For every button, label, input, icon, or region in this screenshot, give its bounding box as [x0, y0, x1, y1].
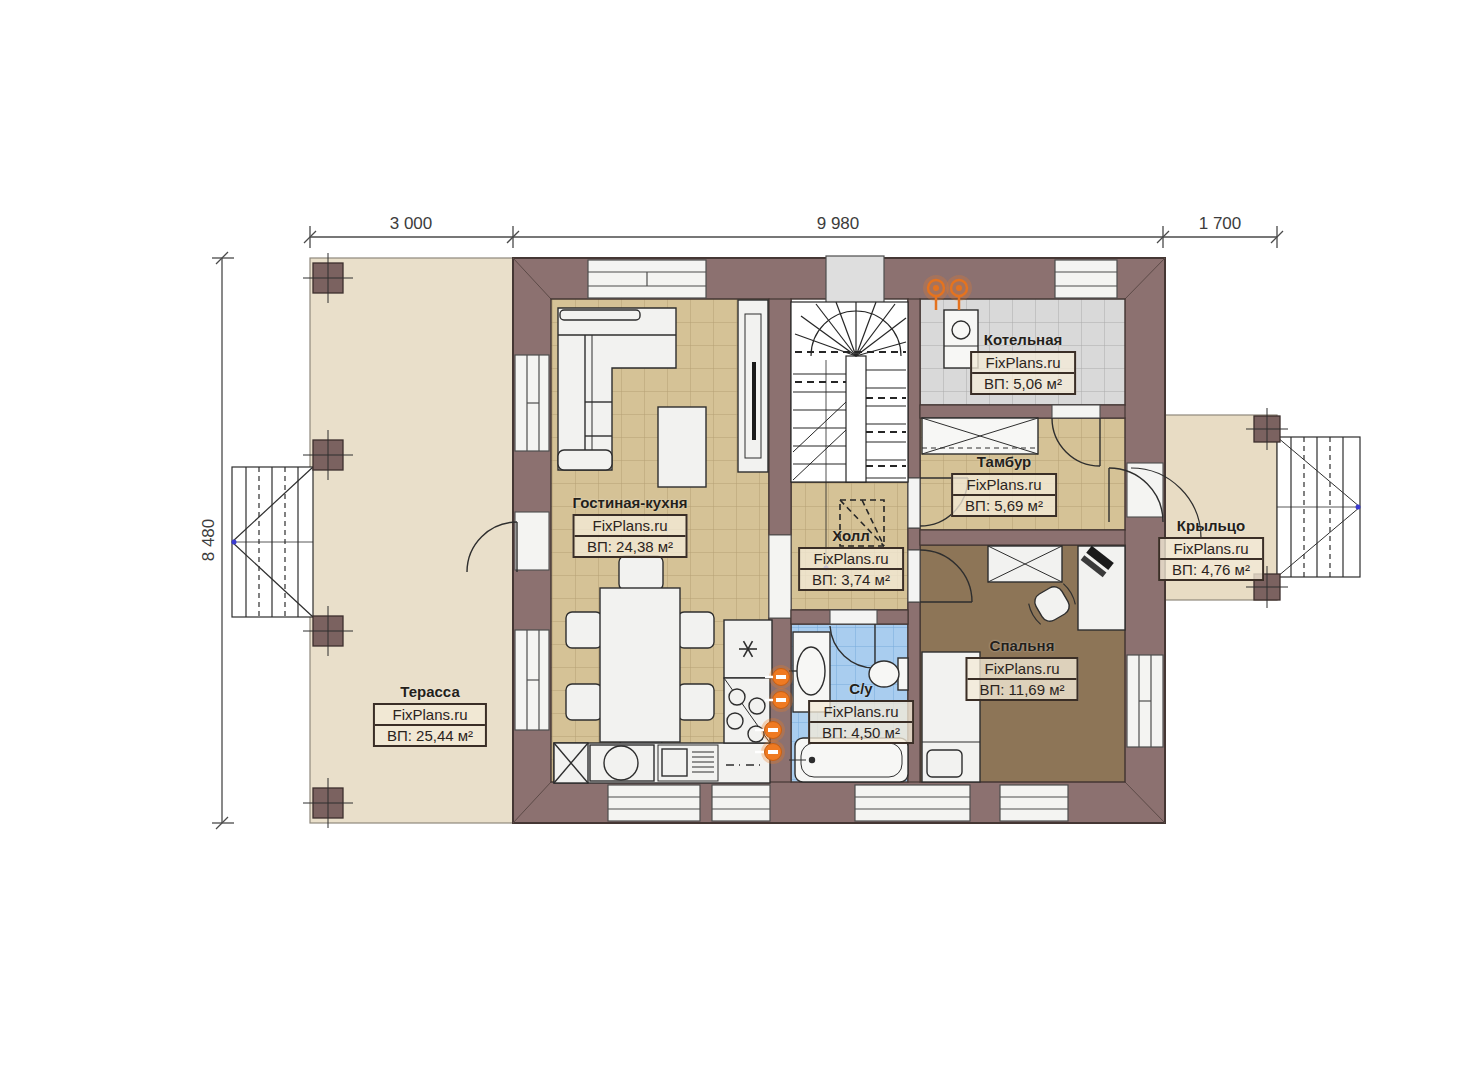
- room-area-vestibule: ВП: 5,69 м²: [953, 496, 1055, 515]
- room-name-bathroom: С/у: [808, 680, 914, 697]
- room-info-living-kitchen: FixPlans.ru ВП: 24,38 м²: [573, 514, 687, 558]
- terrace-steps: [232, 467, 314, 617]
- watermark-text: FixPlans.ru: [575, 516, 685, 537]
- room-label-porch: Крыльцо FixPlans.ru ВП: 4,76 м²: [1158, 517, 1264, 581]
- room-name-boiler: Котельная: [970, 331, 1076, 348]
- room-label-vestibule: Тамбур FixPlans.ru ВП: 5,69 м²: [951, 453, 1057, 517]
- room-name-vestibule: Тамбур: [951, 453, 1057, 470]
- room-area-boiler: ВП: 5,06 м²: [972, 374, 1074, 393]
- porch-steps: [1277, 437, 1361, 577]
- watermark-text: FixPlans.ru: [810, 702, 912, 723]
- room-name-hall: Холл: [798, 527, 904, 544]
- floor-plan-page: 3 000 9 980 1 700 8 480: [0, 0, 1473, 1080]
- dimension-label-9980: 9 980: [817, 214, 860, 233]
- watermark-text: FixPlans.ru: [972, 353, 1074, 374]
- dimension-label-8480: 8 480: [199, 519, 218, 562]
- vestibule-furniture: [922, 418, 1038, 454]
- room-label-bathroom: С/у FixPlans.ru ВП: 4,50 м²: [808, 680, 914, 744]
- coffee-table: [658, 407, 706, 487]
- room-area-terrace: ВП: 25,44 м²: [375, 726, 485, 745]
- window-bottom-bathroom: [855, 785, 970, 821]
- room-area-porch: ВП: 4,76 м²: [1160, 560, 1262, 579]
- room-info-bedroom: FixPlans.ru ВП: 11,69 м²: [965, 657, 1078, 701]
- window-bottom-kitchen-1: [608, 785, 700, 821]
- room-info-hall: FixPlans.ru ВП: 3,74 м²: [798, 547, 904, 591]
- kitchen-sink: [590, 745, 654, 781]
- bathtub: [789, 738, 908, 782]
- room-label-terrace: Терасса FixPlans.ru ВП: 25,44 м²: [373, 683, 487, 747]
- room-name-living-kitchen: Гостиная-кухня: [573, 494, 688, 511]
- window-bottom-bedroom: [1000, 785, 1068, 821]
- dimension-label-1700: 1 700: [1199, 214, 1242, 233]
- watermark-text: FixPlans.ru: [375, 705, 485, 726]
- window-left-living-2: [515, 630, 549, 730]
- room-info-bathroom: FixPlans.ru ВП: 4,50 м²: [808, 700, 914, 744]
- room-name-bedroom: Спальня: [965, 637, 1078, 654]
- room-info-terrace: FixPlans.ru ВП: 25,44 м²: [373, 703, 487, 747]
- living-hall-opening: [769, 535, 791, 618]
- refrigerator: [724, 620, 772, 678]
- room-info-porch: FixPlans.ru ВП: 4,76 м²: [1158, 537, 1264, 581]
- room-area-living-kitchen: ВП: 24,38 м²: [575, 537, 685, 556]
- chimney-block: [826, 256, 884, 304]
- room-label-bedroom: Спальня FixPlans.ru ВП: 11,69 м²: [965, 637, 1078, 701]
- window-top-living: [588, 260, 706, 298]
- window-right-bedroom: [1127, 655, 1163, 747]
- vestibule-wardrobe: [922, 418, 1038, 454]
- room-name-terrace: Терасса: [373, 683, 487, 700]
- room-info-vestibule: FixPlans.ru ВП: 5,69 м²: [951, 473, 1057, 517]
- room-area-bedroom: ВП: 11,69 м²: [967, 680, 1076, 699]
- cabinet-x: [554, 743, 588, 783]
- bedroom-wardrobe: [988, 546, 1062, 582]
- room-area-bathroom: ВП: 4,50 м²: [810, 723, 912, 742]
- room-label-living-kitchen: Гостиная-кухня FixPlans.ru ВП: 24,38 м²: [573, 494, 688, 558]
- desk: [1078, 546, 1125, 630]
- watermark-text: FixPlans.ru: [1160, 539, 1262, 560]
- dimension-label-3000: 3 000: [390, 214, 433, 233]
- tv-stand: [738, 300, 768, 472]
- window-left-living-1: [515, 355, 549, 451]
- room-label-boiler: Котельная FixPlans.ru ВП: 5,06 м²: [970, 331, 1076, 395]
- room-name-porch: Крыльцо: [1158, 517, 1264, 534]
- room-label-hall: Холл FixPlans.ru ВП: 3,74 м²: [798, 527, 904, 591]
- watermark-text: FixPlans.ru: [967, 659, 1076, 680]
- oven: [658, 745, 718, 781]
- window-top-boiler: [1055, 260, 1117, 298]
- room-area-hall: ВП: 3,74 м²: [800, 570, 902, 589]
- watermark-text: FixPlans.ru: [953, 475, 1055, 496]
- window-bottom-kitchen-2: [712, 785, 770, 821]
- kitchen-counter: [554, 743, 770, 783]
- room-info-boiler: FixPlans.ru ВП: 5,06 м²: [970, 351, 1076, 395]
- watermark-text: FixPlans.ru: [800, 549, 902, 570]
